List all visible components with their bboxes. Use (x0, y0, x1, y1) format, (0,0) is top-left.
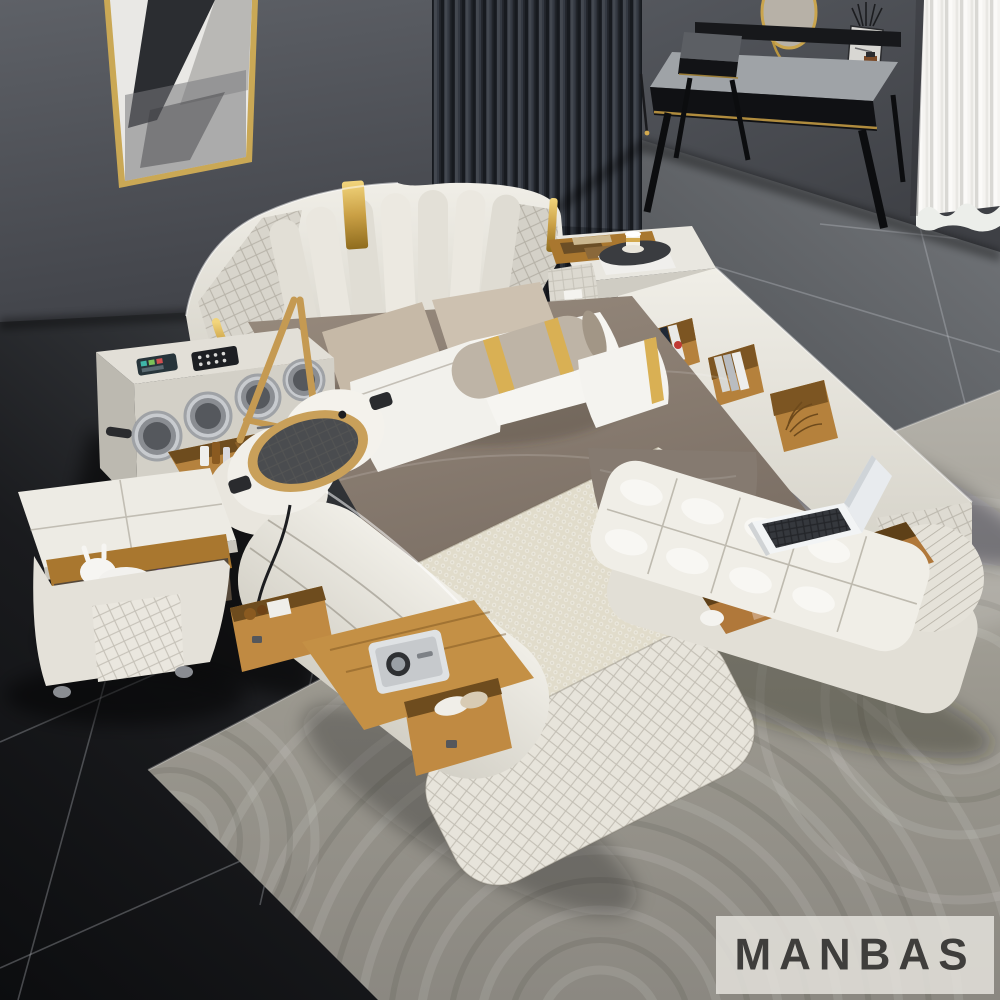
ottoman-foot-right (175, 666, 193, 678)
bedroom-product-photo: MANBAS (0, 0, 1000, 1000)
white-pleated-curtain (910, 0, 1000, 232)
brand-watermark: MANBAS (716, 916, 994, 994)
drawer-handle-2 (446, 740, 457, 748)
scene-art (0, 0, 1000, 1000)
framed-abstract-wall-art (104, 0, 258, 188)
drawer-handle-1 (252, 636, 262, 643)
brand-watermark-text: MANBAS (734, 930, 975, 981)
speaker-2 (185, 393, 231, 439)
ottoman-foot-left (53, 686, 71, 698)
